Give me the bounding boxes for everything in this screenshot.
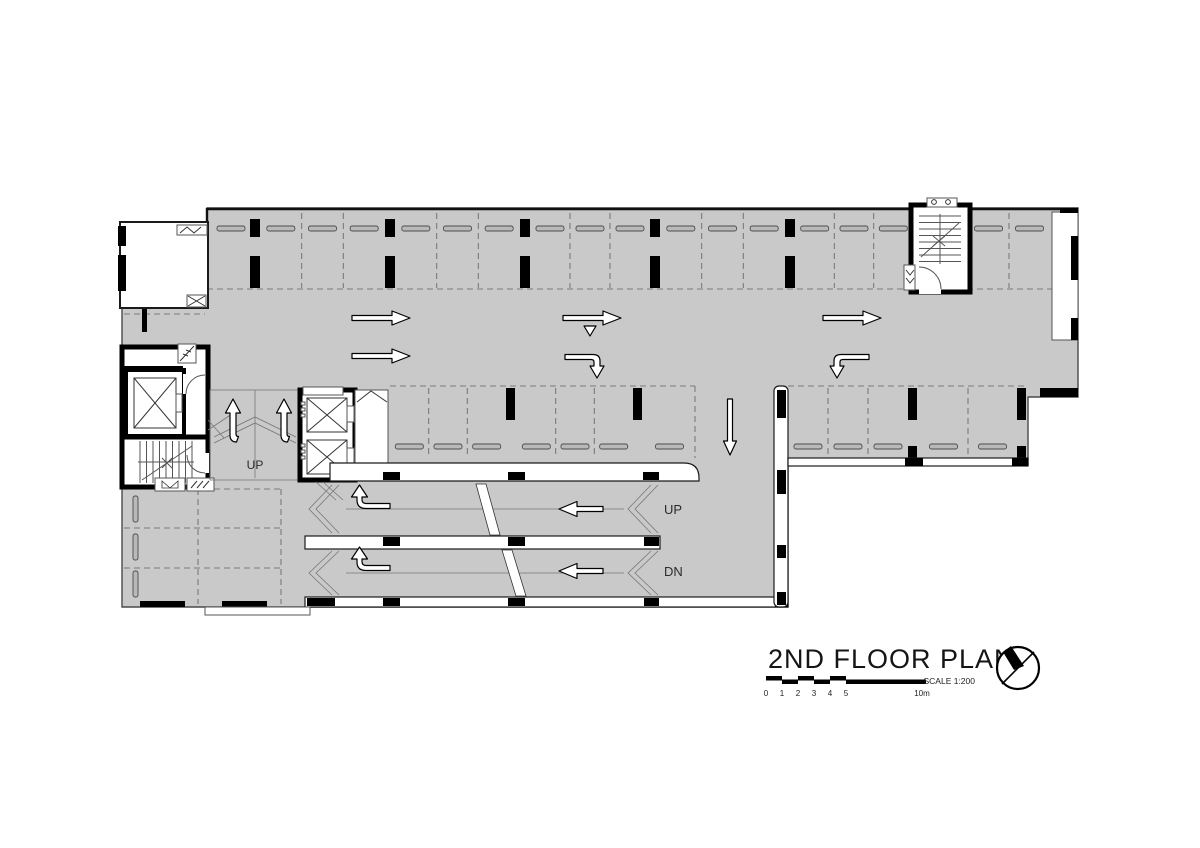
fixture-icon [177, 225, 207, 235]
walkway-band [330, 463, 699, 481]
title-block: 2ND FLOOR PLAN 0 1 2 3 4 5 10m SCALE 1:2… [764, 644, 1039, 698]
ramp-separator-wall [305, 536, 660, 549]
door-gap [919, 287, 941, 294]
ramp-up-label: UP [664, 502, 682, 517]
scale-max-label: 10m [914, 689, 930, 698]
page-title: 2ND FLOOR PLAN [768, 644, 1015, 674]
scale-tick: 2 [796, 689, 801, 698]
scale-tick: 0 [764, 689, 769, 698]
fixture-icon [904, 265, 915, 290]
scale-tick: 3 [812, 689, 817, 698]
top-right-stair [904, 198, 970, 294]
scale-tick: 4 [828, 689, 833, 698]
ramp-down-label: DN [664, 564, 683, 579]
scale-tick: 5 [844, 689, 849, 698]
fhc-box-icon [155, 478, 185, 491]
page: UP [0, 0, 1200, 848]
scale-bar: 0 1 2 3 4 5 10m SCALE 1:200 [764, 676, 975, 698]
column [142, 308, 147, 332]
stair-icon [138, 441, 194, 483]
scale-label: SCALE 1:200 [923, 676, 975, 686]
door-gap [203, 453, 209, 473]
floor-plan-svg: UP [0, 0, 1200, 848]
ramp-bottom-wall [305, 597, 788, 607]
door-gap [183, 374, 188, 394]
north-arrow-icon [997, 646, 1039, 689]
scale-tick: 1 [780, 689, 785, 698]
top-left-room [118, 222, 208, 308]
left-stair-core [122, 344, 214, 491]
fixture-icon [303, 387, 343, 395]
entry-up-label: UP [247, 458, 264, 472]
